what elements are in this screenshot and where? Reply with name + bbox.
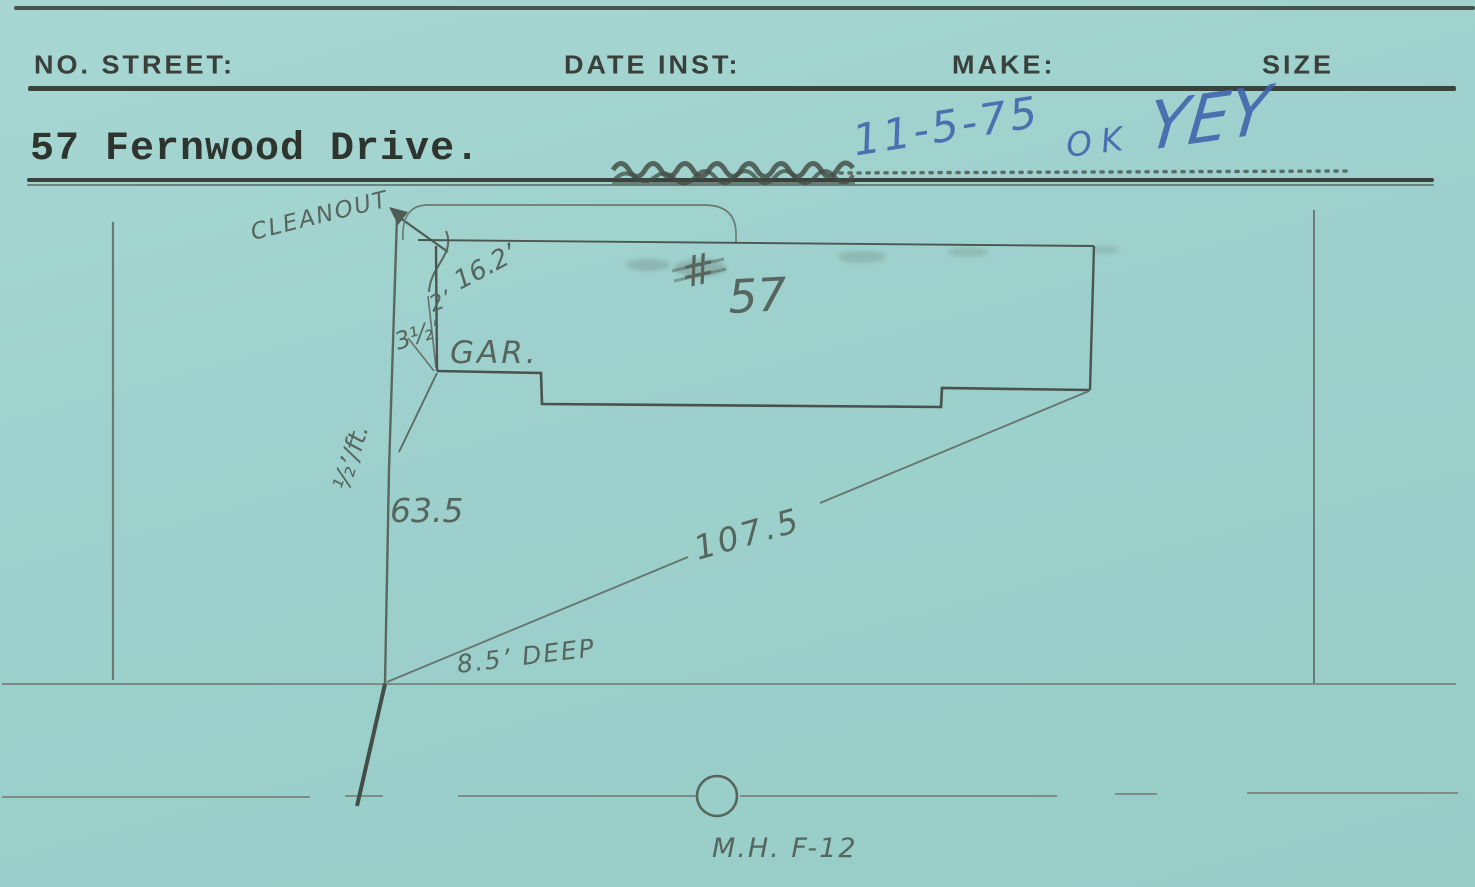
- sewer-lateral-street-segment: [357, 684, 385, 806]
- label-manhole: M.H. F-12: [712, 833, 858, 864]
- porch-outline: [403, 205, 736, 242]
- street-centerline: [2, 793, 1458, 797]
- label-16-2: 16.2’: [449, 238, 522, 296]
- label-hash: #: [676, 243, 721, 298]
- label-slope: ½’/ft.: [327, 421, 374, 494]
- crossed-out-text: [612, 163, 855, 184]
- plot-diagram: CLEANOUT 16.2’ 2’ 3½’ GAR. # 57 ½’/ft. 6…: [0, 0, 1475, 887]
- dotted-leader-line: [840, 171, 1352, 173]
- house-connector-line: [399, 373, 437, 452]
- record-card: NO. STREET: DATE INST: MAKE: SIZE 57 Fer…: [0, 0, 1475, 887]
- cleanout-arrow-icon: [389, 207, 448, 252]
- sewer-lateral-line: [385, 216, 397, 684]
- label-house-number: 57: [727, 267, 788, 324]
- label-garage: GAR.: [450, 335, 539, 371]
- manhole-circle: [697, 776, 737, 816]
- label-63-5: 63.5: [390, 491, 463, 530]
- label-107-5: 107.5: [689, 500, 805, 568]
- label-depth: 8.5’ DEEP: [455, 633, 597, 679]
- label-cleanout: CLEANOUT: [248, 186, 391, 245]
